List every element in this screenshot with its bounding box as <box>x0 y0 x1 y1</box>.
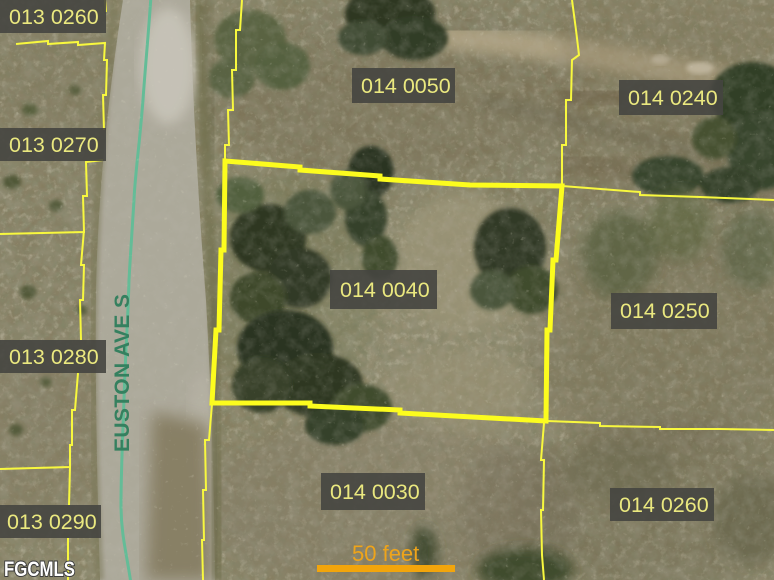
svg-text:013 0280: 013 0280 <box>9 345 99 369</box>
svg-text:014 0030: 014 0030 <box>330 480 420 504</box>
svg-text:FGCMLS: FGCMLS <box>4 558 75 580</box>
svg-text:014 0260: 014 0260 <box>619 493 709 517</box>
svg-text:014 0250: 014 0250 <box>620 299 710 323</box>
svg-text:013 0260: 013 0260 <box>9 5 99 29</box>
svg-text:014 0050: 014 0050 <box>361 74 451 98</box>
svg-text:014 0040: 014 0040 <box>340 278 430 302</box>
svg-text:50 feet: 50 feet <box>352 541 419 566</box>
svg-text:013 0270: 013 0270 <box>9 133 99 157</box>
svg-text:EUSTON AVE S: EUSTON AVE S <box>111 294 134 452</box>
svg-text:014 0240: 014 0240 <box>628 86 718 110</box>
svg-text:013 0290: 013 0290 <box>7 510 97 534</box>
